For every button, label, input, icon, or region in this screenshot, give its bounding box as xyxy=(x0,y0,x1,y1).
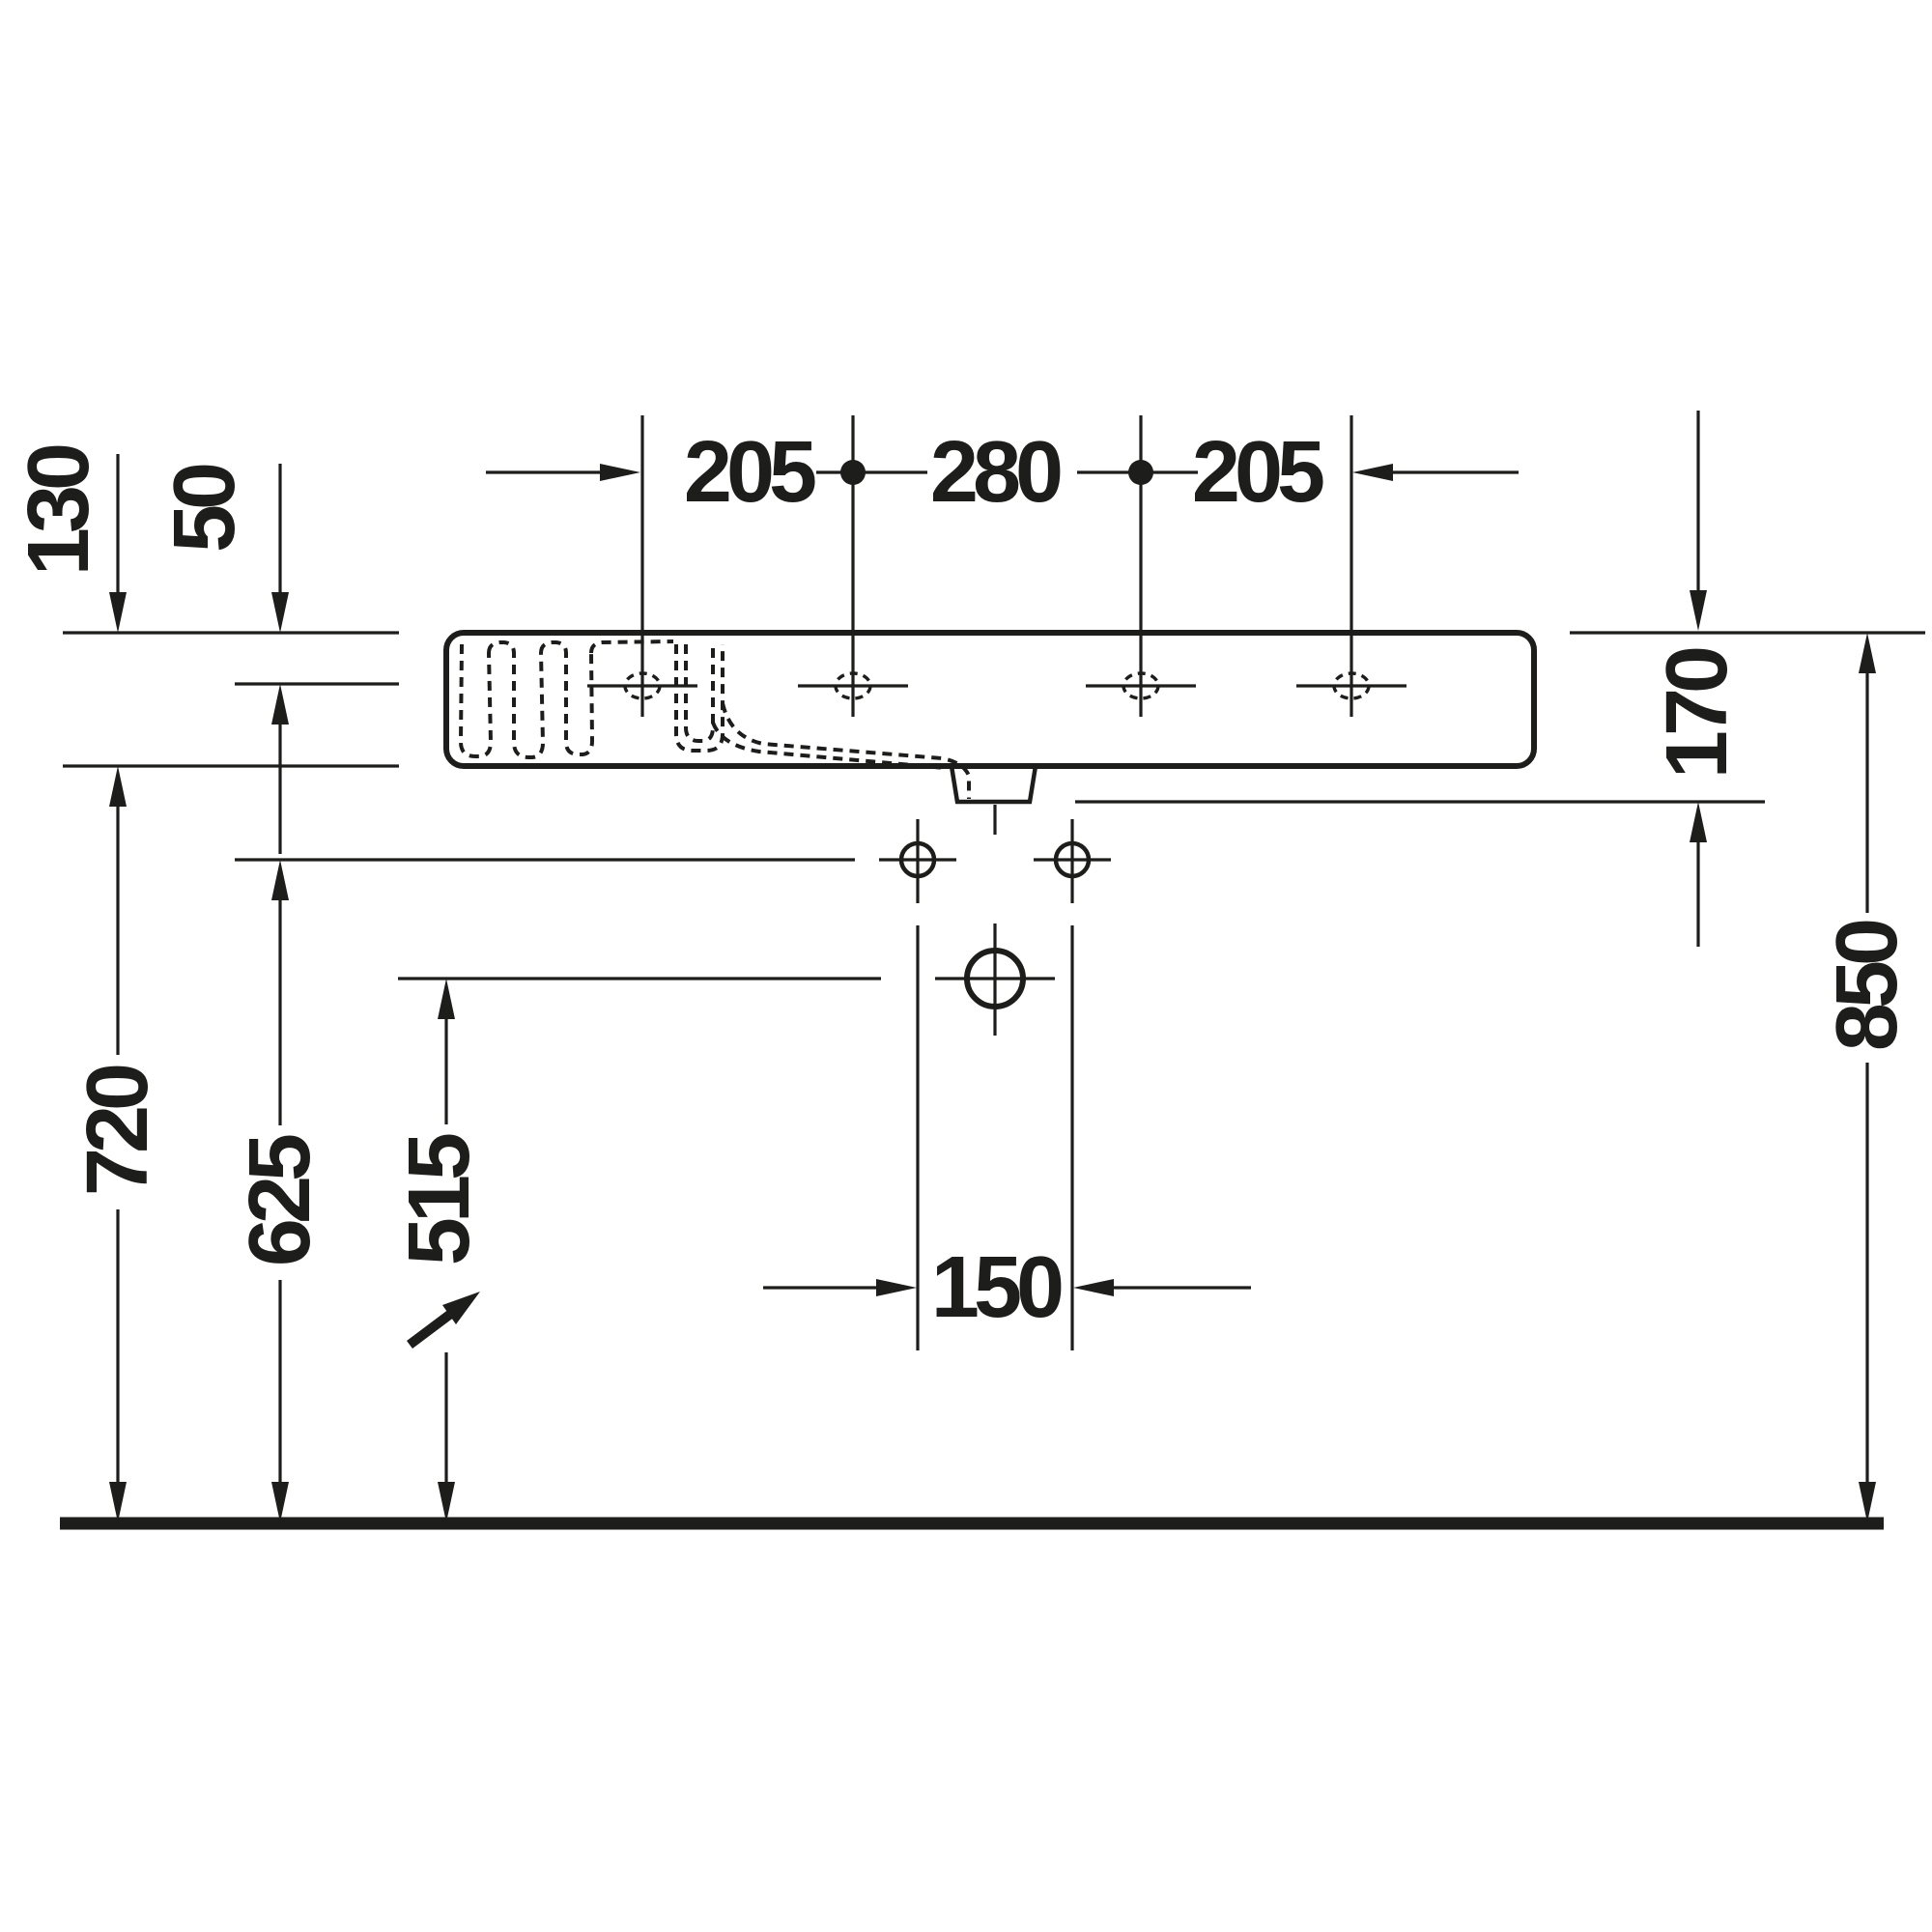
arrowhead-icon xyxy=(438,979,455,1019)
arrowhead-icon xyxy=(1690,802,1707,842)
arrowhead-icon xyxy=(438,1482,455,1522)
arrowhead-icon xyxy=(271,1482,289,1522)
dim-label-hole-spacing-left: 205 xyxy=(684,424,815,521)
dimension-fixing-spacing: 150 xyxy=(763,925,1251,1350)
dim-label-floor-to-underside: 720 xyxy=(70,1065,166,1196)
arrowhead-icon xyxy=(109,592,127,633)
arrowhead-icon xyxy=(271,592,289,633)
faucet-holes xyxy=(587,673,1406,698)
arrowhead-icon xyxy=(1859,633,1876,673)
dim-label-floor-to-rim: 850 xyxy=(1819,921,1916,1051)
dimension-mounting-depth: 170 xyxy=(1649,411,1746,947)
dimension-drain-height: 515 xyxy=(391,979,488,1522)
dim-label-hole-spacing-mid: 280 xyxy=(930,424,1061,521)
arrowhead-icon xyxy=(1859,1482,1876,1522)
arrowhead-icon xyxy=(109,766,127,807)
arrowhead-icon xyxy=(1690,590,1707,631)
dimension-hole-spacing: 205 280 205 xyxy=(486,415,1519,717)
dim-label-fixing-spacing: 150 xyxy=(931,1239,1062,1336)
arrowhead-icon xyxy=(109,1482,127,1522)
washbasin xyxy=(446,633,1534,835)
arrowhead-icon xyxy=(271,860,289,900)
arrowhead-icon xyxy=(1073,1279,1114,1296)
dimension-body-height-and-underside: 130 720 xyxy=(11,445,166,1522)
bowl-section-profile xyxy=(461,641,969,799)
dim-label-floor-to-drain: 515 xyxy=(391,1134,488,1265)
drain-leader-line xyxy=(410,1313,452,1345)
dimension-ledge-and-fixing-height: 50 625 xyxy=(156,464,328,1522)
drain-outlet xyxy=(935,923,1055,1036)
dimension-dot-icon xyxy=(840,460,866,485)
arrowhead-icon xyxy=(876,1279,917,1296)
dim-label-rim-to-ledge: 50 xyxy=(156,465,253,553)
arrowhead-icon xyxy=(271,684,289,724)
dimension-rim-height: 850 xyxy=(1819,633,1916,1522)
technical-drawing: 205 280 205 130 720 50 625 515 xyxy=(0,0,1932,1932)
dim-label-body-height: 130 xyxy=(11,445,107,576)
washbasin-outline xyxy=(446,633,1534,766)
arrowhead-icon xyxy=(600,464,640,481)
drawing-canvas: 205 280 205 130 720 50 625 515 xyxy=(0,0,1932,1932)
arrowhead-icon xyxy=(1352,464,1393,481)
bowl-outlet-channel-bottom xyxy=(713,723,945,768)
dimension-dot-icon xyxy=(1128,460,1153,485)
dim-label-rim-to-mounting: 170 xyxy=(1649,648,1746,779)
dim-label-hole-spacing-right: 205 xyxy=(1192,424,1323,521)
dim-label-floor-to-fixing-holes: 625 xyxy=(232,1135,328,1266)
